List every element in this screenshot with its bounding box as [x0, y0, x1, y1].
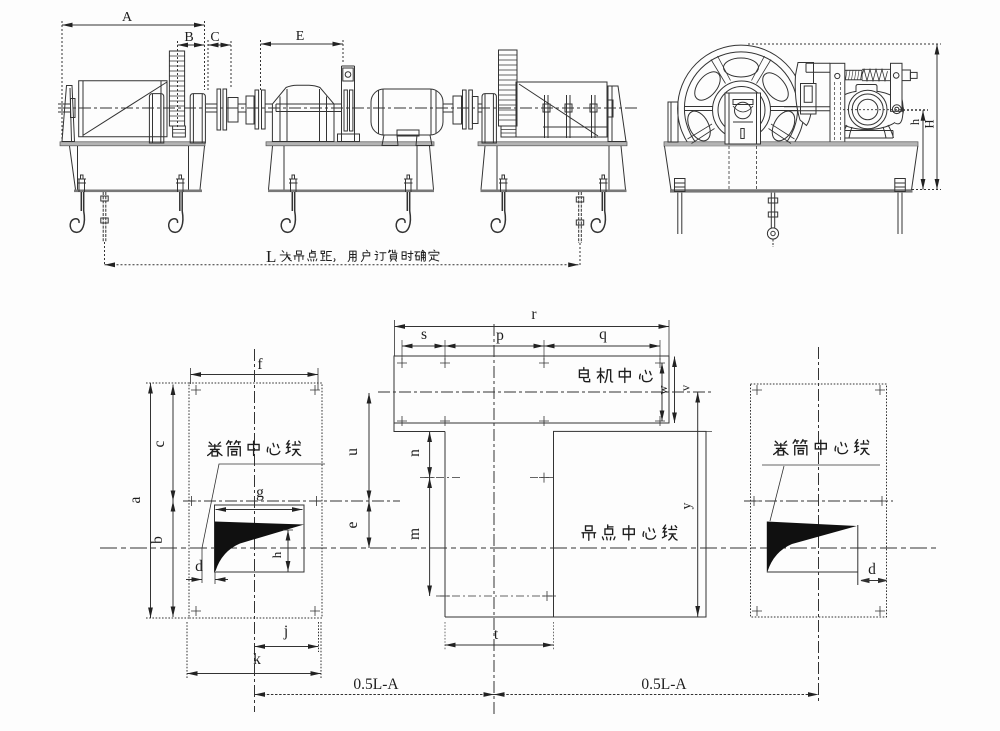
svg-text:r: r: [531, 306, 537, 323]
svg-text:E: E: [296, 29, 305, 44]
svg-text:k: k: [253, 651, 261, 668]
svg-text:a: a: [127, 496, 144, 503]
svg-text:y: y: [679, 502, 694, 509]
svg-text:h: h: [908, 118, 922, 125]
svg-text:w: w: [656, 385, 670, 394]
svg-text:0.5L-A: 0.5L-A: [641, 676, 687, 693]
svg-text:t: t: [494, 626, 499, 643]
svg-text:s: s: [421, 326, 427, 343]
svg-text:A: A: [122, 10, 133, 25]
svg-text:b: b: [149, 536, 166, 544]
svg-text:H: H: [923, 119, 937, 128]
svg-text:n: n: [406, 449, 423, 457]
svg-text:h: h: [269, 551, 284, 558]
svg-text:0.5L-A: 0.5L-A: [353, 676, 399, 693]
svg-text:e: e: [344, 521, 361, 528]
svg-text:p: p: [496, 327, 504, 344]
svg-text:j: j: [283, 623, 288, 640]
svg-text:m: m: [406, 528, 423, 540]
svg-text:f: f: [257, 356, 263, 373]
svg-text:v: v: [679, 384, 693, 391]
svg-text:c: c: [151, 440, 168, 447]
svg-text:g: g: [256, 484, 264, 501]
svg-text:d: d: [868, 561, 876, 578]
svg-text:C: C: [210, 30, 219, 45]
svg-text:u: u: [344, 448, 361, 456]
svg-text:q: q: [599, 326, 607, 343]
svg-text:L: L: [266, 247, 276, 266]
svg-text:d: d: [195, 558, 203, 575]
svg-text:B: B: [184, 30, 193, 45]
